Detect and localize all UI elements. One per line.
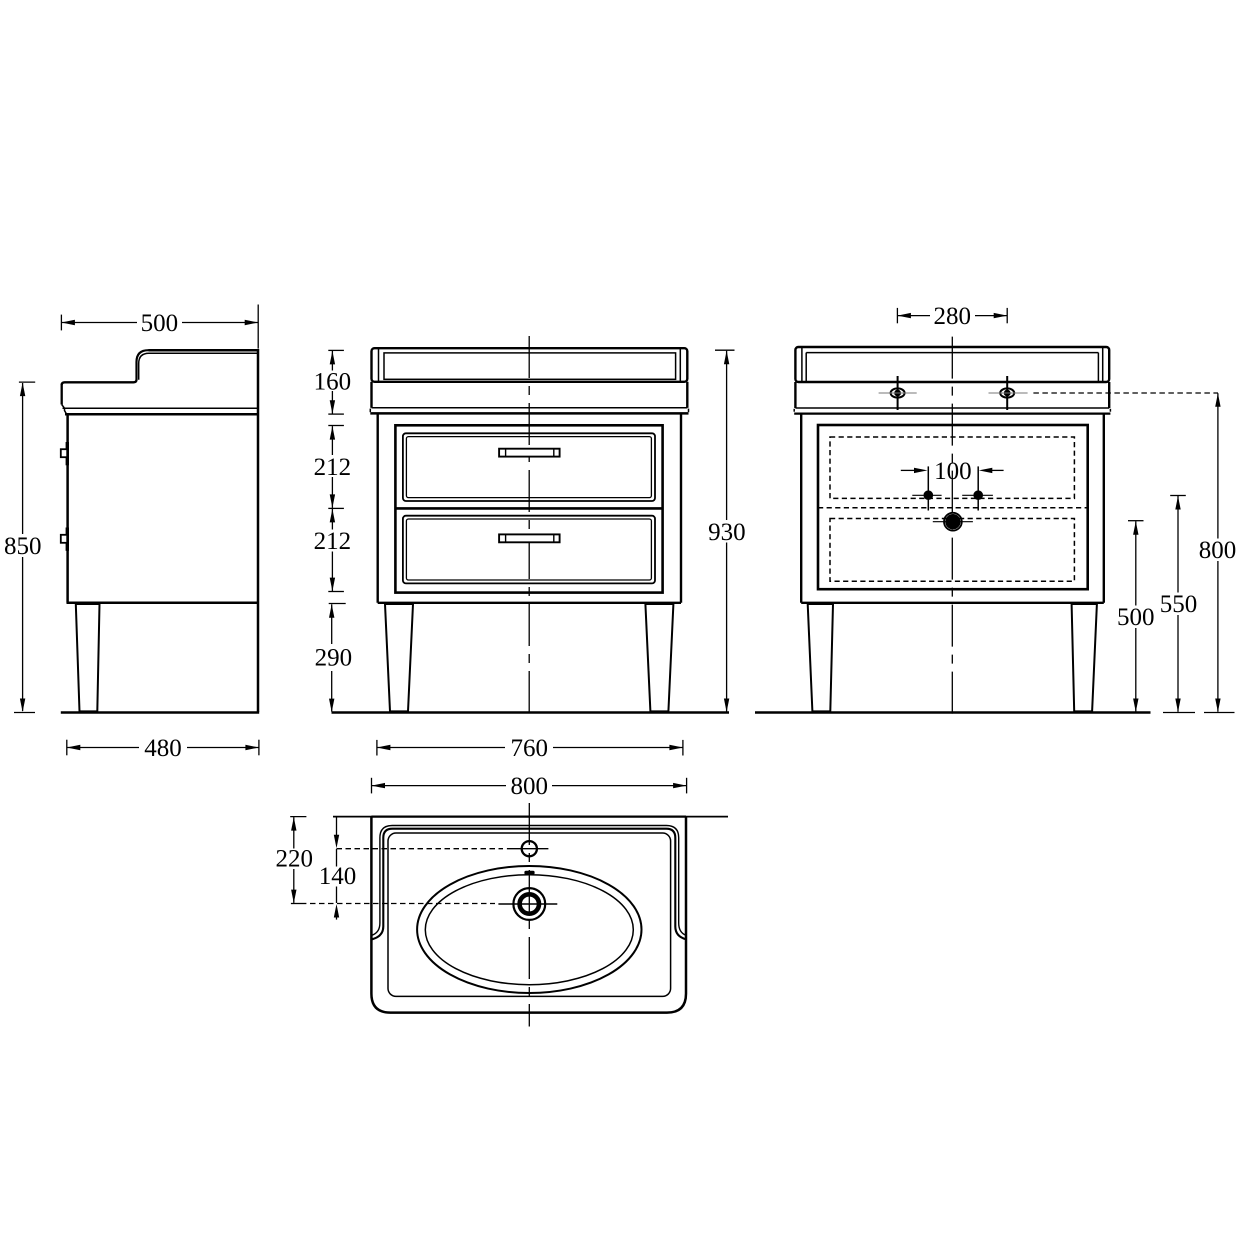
svg-text:800: 800 bbox=[1199, 537, 1236, 564]
svg-text:280: 280 bbox=[934, 303, 972, 330]
svg-text:220: 220 bbox=[276, 845, 314, 872]
svg-text:850: 850 bbox=[4, 533, 42, 560]
svg-text:550: 550 bbox=[1160, 591, 1198, 618]
svg-text:290: 290 bbox=[315, 645, 353, 672]
svg-text:480: 480 bbox=[144, 735, 182, 762]
svg-text:930: 930 bbox=[708, 519, 746, 546]
svg-text:212: 212 bbox=[314, 454, 352, 481]
svg-text:212: 212 bbox=[314, 528, 352, 555]
svg-text:500: 500 bbox=[1117, 604, 1155, 631]
svg-text:100: 100 bbox=[934, 458, 972, 485]
svg-text:800: 800 bbox=[511, 773, 549, 800]
svg-text:500: 500 bbox=[141, 310, 179, 337]
svg-text:160: 160 bbox=[314, 369, 352, 396]
svg-text:760: 760 bbox=[510, 735, 548, 762]
svg-text:140: 140 bbox=[319, 863, 357, 890]
